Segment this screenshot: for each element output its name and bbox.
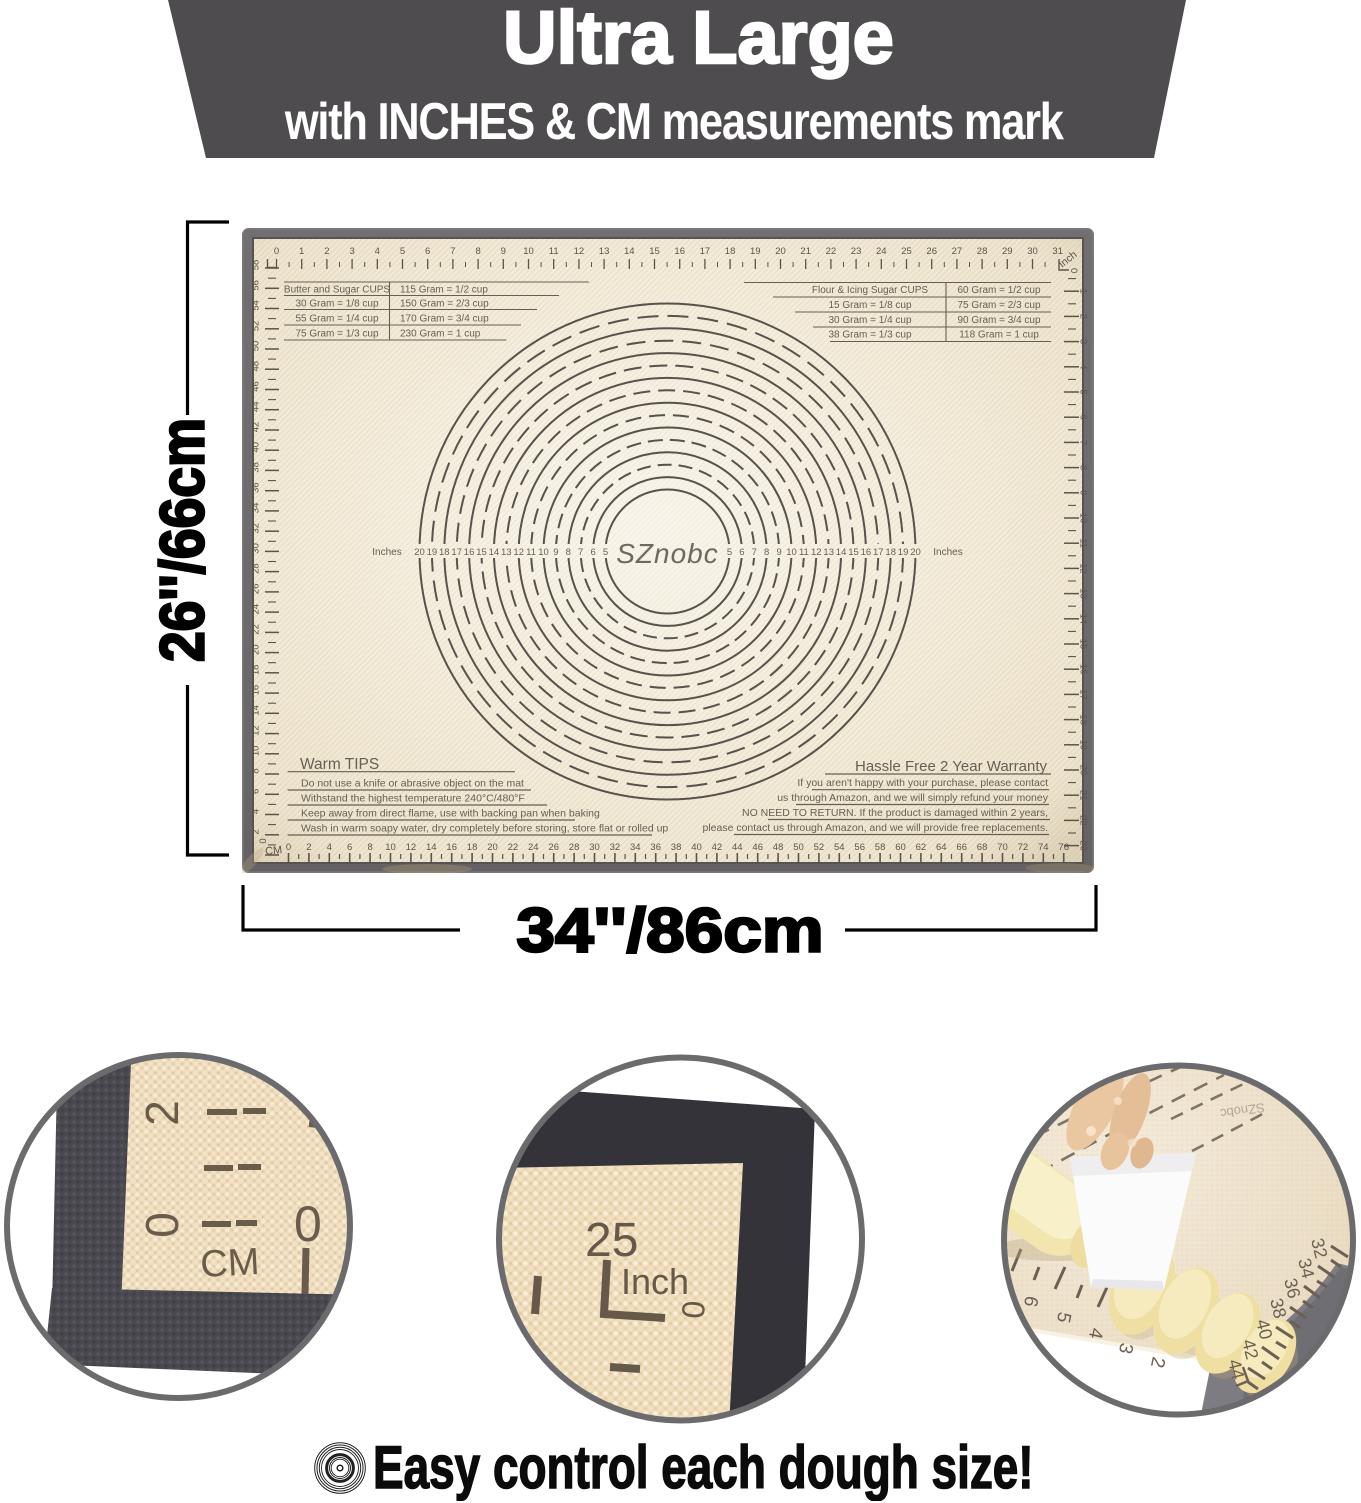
svg-text:0: 0 — [274, 246, 279, 257]
svg-text:Wash in warm soapy water, dry: Wash in warm soapy water, dry completely… — [301, 823, 668, 835]
svg-text:8: 8 — [251, 768, 262, 773]
svg-text:18: 18 — [439, 547, 450, 558]
svg-text:7: 7 — [1077, 440, 1088, 445]
svg-text:4: 4 — [251, 809, 262, 814]
svg-text:0: 0 — [1068, 268, 1079, 273]
svg-text:16: 16 — [251, 685, 262, 696]
svg-text:21: 21 — [800, 246, 811, 257]
svg-text:8: 8 — [764, 547, 769, 558]
svg-text:3: 3 — [1077, 339, 1088, 344]
svg-text:22: 22 — [826, 246, 837, 257]
svg-text:11: 11 — [526, 547, 536, 558]
svg-text:29: 29 — [1002, 246, 1013, 257]
svg-text:38 Gram = 1/3 cup: 38 Gram = 1/3 cup — [828, 330, 912, 341]
svg-text:23: 23 — [1077, 840, 1088, 851]
svg-text:48: 48 — [773, 842, 784, 853]
svg-text:38: 38 — [671, 842, 682, 853]
svg-text:15: 15 — [649, 246, 660, 257]
svg-text:19: 19 — [427, 547, 438, 558]
svg-text:10: 10 — [385, 842, 396, 853]
svg-text:13: 13 — [823, 547, 834, 558]
svg-text:Hassle Free 2 Year Warranty: Hassle Free 2 Year Warranty — [855, 758, 1048, 775]
svg-text:20: 20 — [251, 644, 262, 655]
svg-text:14: 14 — [1077, 614, 1088, 625]
svg-text:74: 74 — [1038, 842, 1049, 853]
svg-text:0: 0 — [294, 1196, 322, 1252]
svg-text:11: 11 — [799, 547, 809, 558]
svg-text:28: 28 — [251, 563, 262, 574]
svg-text:12: 12 — [811, 547, 822, 558]
svg-text:16: 16 — [861, 547, 872, 558]
svg-text:66: 66 — [956, 842, 967, 853]
svg-text:18: 18 — [467, 842, 478, 853]
svg-text:50: 50 — [793, 842, 804, 853]
svg-text:10: 10 — [251, 746, 262, 757]
svg-text:34: 34 — [630, 842, 641, 853]
svg-text:76: 76 — [1058, 842, 1069, 853]
svg-text:2: 2 — [1077, 314, 1088, 319]
svg-text:60 Gram = 1/2 cup: 60 Gram = 1/2 cup — [957, 285, 1041, 296]
svg-text:50: 50 — [251, 341, 262, 352]
svg-text:30: 30 — [1027, 246, 1038, 257]
svg-text:16: 16 — [674, 246, 685, 257]
svg-text:0: 0 — [258, 838, 269, 843]
svg-text:16: 16 — [1077, 664, 1088, 675]
svg-text:16: 16 — [464, 547, 475, 558]
svg-text:26: 26 — [251, 584, 262, 595]
svg-text:10: 10 — [538, 547, 549, 558]
svg-text:15 Gram = 1/8 cup: 15 Gram = 1/8 cup — [828, 300, 912, 311]
svg-text:17: 17 — [451, 547, 462, 558]
svg-text:40: 40 — [691, 842, 702, 853]
svg-text:20: 20 — [1077, 765, 1088, 776]
svg-text:Warm TIPS: Warm TIPS — [300, 756, 379, 773]
svg-text:28: 28 — [977, 246, 988, 257]
svg-text:14: 14 — [251, 705, 262, 716]
svg-text:19: 19 — [898, 547, 909, 558]
svg-text:10: 10 — [1077, 513, 1088, 524]
svg-text:58: 58 — [251, 260, 262, 271]
svg-text:11: 11 — [549, 246, 559, 257]
svg-text:4: 4 — [327, 842, 332, 853]
svg-text:75 Gram = 1/3 cup: 75 Gram = 1/3 cup — [295, 329, 379, 340]
svg-text:26: 26 — [926, 246, 937, 257]
svg-text:68: 68 — [977, 842, 988, 853]
svg-text:64: 64 — [936, 842, 947, 853]
svg-text:12: 12 — [1077, 563, 1088, 574]
svg-text:9: 9 — [553, 547, 558, 558]
svg-text:0: 0 — [675, 1300, 712, 1320]
svg-text:36: 36 — [650, 842, 661, 853]
svg-text:54: 54 — [834, 842, 845, 853]
svg-text:19: 19 — [750, 246, 761, 257]
svg-text:14: 14 — [624, 246, 635, 257]
svg-text:CM: CM — [199, 1241, 260, 1286]
svg-text:24: 24 — [528, 842, 539, 853]
svg-text:56: 56 — [251, 280, 262, 291]
svg-text:15: 15 — [476, 547, 487, 558]
svg-text:17: 17 — [700, 246, 711, 257]
svg-text:2: 2 — [306, 842, 311, 853]
svg-text:11: 11 — [1077, 538, 1088, 548]
svg-text:48: 48 — [251, 361, 262, 372]
svg-text:75 Gram = 2/3 cup: 75 Gram = 2/3 cup — [957, 300, 1041, 311]
svg-text:Inch: Inch — [621, 1261, 689, 1302]
svg-text:15: 15 — [1077, 639, 1088, 650]
svg-text:If you aren't happy with your: If you aren't happy with your purchase, … — [797, 777, 1048, 789]
svg-text:Withstand the highest temperat: Withstand the highest temperature 240°C/… — [301, 793, 525, 805]
svg-text:25: 25 — [585, 1214, 638, 1267]
svg-text:32: 32 — [251, 523, 262, 534]
svg-text:5: 5 — [1077, 389, 1088, 394]
svg-text:18: 18 — [725, 246, 736, 257]
svg-text:36: 36 — [251, 482, 262, 493]
svg-text:0: 0 — [286, 842, 291, 853]
svg-text:25: 25 — [901, 246, 912, 257]
svg-text:30: 30 — [251, 543, 262, 554]
svg-text:18: 18 — [251, 665, 262, 676]
svg-text:72: 72 — [1018, 842, 1029, 853]
svg-text:14: 14 — [489, 547, 500, 558]
svg-text:6: 6 — [590, 547, 595, 558]
svg-text:60: 60 — [895, 842, 906, 853]
svg-text:Keep away from direct flame, u: Keep away from direct flame, use with ba… — [301, 808, 600, 820]
svg-text:2: 2 — [324, 246, 329, 257]
svg-text:58: 58 — [875, 842, 886, 853]
svg-text:230 Gram = 1 cup: 230 Gram = 1 cup — [400, 329, 481, 340]
svg-text:14: 14 — [836, 547, 847, 558]
svg-text:10: 10 — [786, 547, 797, 558]
svg-text:24: 24 — [251, 604, 262, 615]
svg-text:70: 70 — [997, 842, 1008, 853]
svg-text:4: 4 — [1077, 364, 1088, 369]
svg-text:115 Gram = 1/2 cup: 115 Gram = 1/2 cup — [400, 285, 488, 296]
svg-text:Inches: Inches — [933, 547, 962, 558]
svg-text:NO NEED TO RETURN. If the prod: NO NEED TO RETURN. If the product is dam… — [742, 807, 1048, 819]
svg-text:17: 17 — [873, 547, 884, 558]
svg-text:18: 18 — [1077, 714, 1088, 725]
svg-text:6: 6 — [425, 246, 430, 257]
svg-text:SZnobc: SZnobc — [616, 538, 719, 569]
svg-text:6: 6 — [251, 789, 262, 794]
svg-text:5: 5 — [727, 547, 732, 558]
svg-text:8: 8 — [475, 246, 480, 257]
svg-text:0: 0 — [136, 1212, 188, 1238]
svg-text:170 Gram = 3/4 cup: 170 Gram = 3/4 cup — [400, 314, 489, 325]
svg-text:31: 31 — [1052, 246, 1063, 257]
svg-text:9: 9 — [1077, 490, 1088, 495]
svg-text:7: 7 — [752, 547, 757, 558]
svg-text:26: 26 — [548, 842, 559, 853]
svg-text:12: 12 — [513, 547, 524, 558]
svg-text:8: 8 — [1077, 465, 1088, 470]
svg-text:4: 4 — [375, 246, 380, 257]
svg-text:7: 7 — [578, 547, 583, 558]
svg-text:15: 15 — [848, 547, 859, 558]
svg-text:Butter and Sugar CUPS: Butter and Sugar CUPS — [284, 285, 390, 296]
svg-text:22: 22 — [508, 842, 519, 853]
svg-text:21: 21 — [1077, 790, 1088, 801]
svg-text:5: 5 — [400, 246, 405, 257]
svg-text:42: 42 — [251, 422, 262, 433]
svg-text:Inches: Inches — [372, 547, 401, 558]
svg-text:46: 46 — [251, 381, 262, 392]
svg-text:8: 8 — [367, 842, 372, 853]
svg-text:1: 1 — [299, 246, 304, 257]
svg-text:20: 20 — [414, 547, 425, 558]
svg-text:6: 6 — [1077, 415, 1088, 420]
svg-text:13: 13 — [501, 547, 512, 558]
svg-text:1: 1 — [1077, 289, 1088, 294]
svg-text:22: 22 — [1077, 815, 1088, 826]
svg-text:Flour & Icing Sugar CUPS: Flour & Icing Sugar CUPS — [812, 285, 928, 296]
svg-text:us through Amazon, and we wil: us through Amazon, and we will simply re… — [777, 792, 1049, 804]
svg-text:62: 62 — [916, 842, 927, 853]
svg-text:44: 44 — [251, 401, 262, 412]
svg-text:20: 20 — [487, 842, 498, 853]
svg-text:38: 38 — [251, 462, 262, 473]
svg-text:9: 9 — [501, 246, 506, 257]
svg-text:2: 2 — [136, 1100, 188, 1126]
svg-text:32: 32 — [610, 842, 621, 853]
svg-text:46: 46 — [752, 842, 763, 853]
svg-text:20: 20 — [910, 547, 921, 558]
svg-text:CM: CM — [265, 844, 283, 858]
svg-text:52: 52 — [814, 842, 825, 853]
svg-text:16: 16 — [446, 842, 457, 853]
svg-text:55 Gram = 1/4 cup: 55 Gram = 1/4 cup — [295, 314, 379, 325]
svg-text:42: 42 — [712, 842, 723, 853]
svg-text:8: 8 — [566, 547, 571, 558]
svg-text:30 Gram = 1/8 cup: 30 Gram = 1/8 cup — [295, 299, 379, 310]
svg-text:28: 28 — [569, 842, 580, 853]
svg-text:6: 6 — [739, 547, 744, 558]
svg-text:18: 18 — [885, 547, 896, 558]
svg-text:17: 17 — [1077, 689, 1088, 700]
svg-text:5: 5 — [603, 547, 608, 558]
svg-text:7: 7 — [450, 246, 455, 257]
svg-text:13: 13 — [599, 246, 610, 257]
svg-text:40: 40 — [251, 442, 262, 453]
svg-text:14: 14 — [426, 842, 437, 853]
svg-text:34: 34 — [251, 503, 262, 514]
svg-text:30: 30 — [589, 842, 600, 853]
svg-text:27: 27 — [952, 246, 963, 257]
svg-text:6: 6 — [347, 842, 352, 853]
svg-text:3: 3 — [349, 246, 354, 257]
svg-text:52: 52 — [251, 321, 262, 332]
svg-text:20: 20 — [775, 246, 786, 257]
svg-text:44: 44 — [732, 842, 743, 853]
svg-text:12: 12 — [574, 246, 585, 257]
svg-text:12: 12 — [406, 842, 417, 853]
svg-text:please contact us through Amaz: please contact us through Amazon, and we… — [702, 822, 1048, 834]
svg-text:Do not use a knife or abrasive: Do not use a knife or abrasive object on… — [301, 778, 524, 790]
svg-text:30 Gram = 1/4 cup: 30 Gram = 1/4 cup — [828, 315, 912, 326]
svg-text:56: 56 — [854, 842, 865, 853]
svg-text:54: 54 — [251, 300, 262, 311]
svg-text:90 Gram = 3/4 cup: 90 Gram = 3/4 cup — [957, 315, 1041, 326]
svg-text:12: 12 — [251, 725, 262, 736]
svg-text:150 Gram = 2/3 cup: 150 Gram = 2/3 cup — [400, 299, 489, 310]
svg-text:23: 23 — [851, 246, 862, 257]
svg-text:24: 24 — [876, 246, 887, 257]
svg-text:2: 2 — [251, 829, 262, 834]
svg-text:118 Gram = 1 cup: 118 Gram = 1 cup — [959, 330, 1039, 341]
svg-text:19: 19 — [1077, 740, 1088, 751]
svg-text:22: 22 — [251, 624, 262, 635]
svg-text:13: 13 — [1077, 588, 1088, 599]
svg-text:10: 10 — [523, 246, 534, 257]
svg-text:9: 9 — [776, 547, 781, 558]
